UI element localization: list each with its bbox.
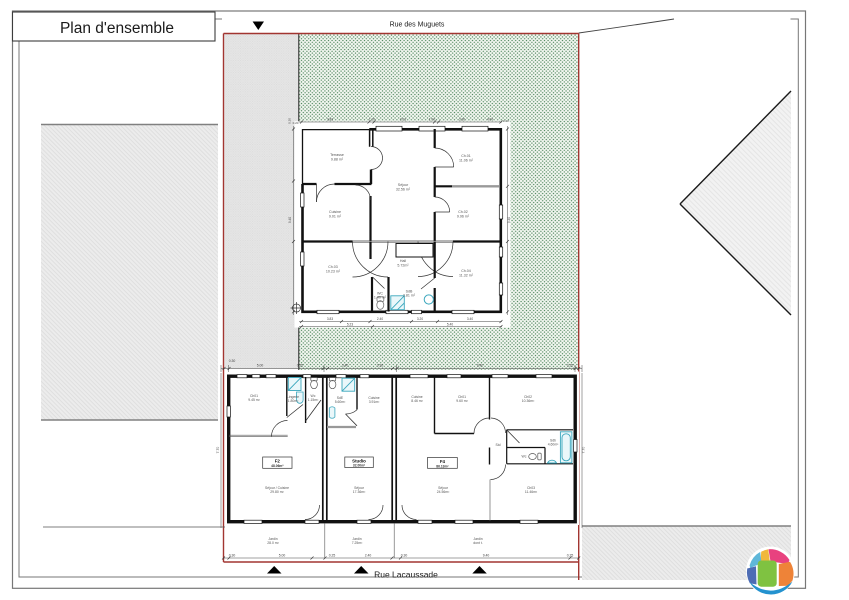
svg-text:Rue Lacaussade: Rue Lacaussade bbox=[374, 570, 438, 580]
svg-text:9.40: 9.40 bbox=[477, 364, 484, 368]
svg-text:9.40: 9.40 bbox=[483, 554, 490, 558]
svg-text:Wc: Wc bbox=[522, 455, 527, 459]
svg-text:17.36m²: 17.36m² bbox=[353, 490, 366, 494]
svg-text:2.40: 2.40 bbox=[365, 554, 372, 558]
svg-text:F4: F4 bbox=[440, 459, 446, 464]
svg-text:28.0 m²: 28.0 m² bbox=[267, 541, 279, 545]
svg-text:11.06 m²: 11.06 m² bbox=[459, 159, 474, 163]
svg-text:0.25: 0.25 bbox=[567, 554, 574, 558]
svg-text:Cuisine: Cuisine bbox=[329, 210, 341, 214]
svg-text:10.36m²: 10.36m² bbox=[522, 399, 535, 403]
svg-text:3.83: 3.83 bbox=[327, 317, 333, 321]
svg-text:1.80m²: 1.80m² bbox=[288, 399, 299, 403]
svg-text:9.40: 9.40 bbox=[288, 217, 292, 223]
svg-text:1.40 m²: 1.40 m² bbox=[374, 296, 387, 300]
svg-text:11.46m²: 11.46m² bbox=[525, 490, 538, 494]
svg-text:5.40: 5.40 bbox=[447, 322, 453, 326]
svg-text:0.30: 0.30 bbox=[377, 364, 384, 368]
svg-text:5.60m²: 5.60m² bbox=[335, 400, 346, 404]
svg-text:0.20: 0.20 bbox=[293, 121, 299, 125]
svg-text:29.80 m²: 29.80 m² bbox=[270, 490, 284, 494]
svg-text:3.40: 3.40 bbox=[467, 317, 473, 321]
svg-text:4.00: 4.00 bbox=[487, 118, 493, 122]
svg-text:Ch.02: Ch.02 bbox=[458, 210, 468, 214]
svg-text:5.23: 5.23 bbox=[347, 322, 353, 326]
svg-text:86.13m²: 86.13m² bbox=[436, 465, 449, 469]
svg-text:9.45 m²: 9.45 m² bbox=[248, 398, 260, 402]
svg-text:1.15m²: 1.15m² bbox=[308, 398, 319, 402]
svg-text:3.20: 3.20 bbox=[417, 317, 423, 321]
svg-text:9.88 m²: 9.88 m² bbox=[331, 158, 344, 162]
svg-text:4.60m²: 4.60m² bbox=[548, 443, 559, 447]
svg-text:3.83: 3.83 bbox=[327, 118, 333, 122]
svg-text:32.00m²: 32.00m² bbox=[353, 464, 366, 468]
svg-text:48.06m²: 48.06m² bbox=[271, 464, 284, 468]
svg-text:9.96 m²: 9.96 m² bbox=[457, 215, 470, 219]
svg-text:Ch.01: Ch.01 bbox=[461, 154, 471, 158]
svg-text:3.81 m²: 3.81 m² bbox=[403, 294, 416, 298]
svg-text:0.30: 0.30 bbox=[229, 554, 236, 558]
svg-text:3.30: 3.30 bbox=[459, 118, 465, 122]
svg-text:9.01 m²: 9.01 m² bbox=[329, 215, 342, 219]
svg-text:Sàl: Sàl bbox=[496, 443, 501, 447]
svg-text:Séjour: Séjour bbox=[398, 183, 409, 187]
svg-text:F2: F2 bbox=[275, 459, 281, 464]
svg-text:0.30: 0.30 bbox=[401, 554, 408, 558]
svg-text:0.25: 0.25 bbox=[567, 364, 574, 368]
svg-text:5.00: 5.00 bbox=[279, 554, 286, 558]
svg-text:1.00: 1.00 bbox=[429, 118, 435, 122]
svg-text:Rue des Muguets: Rue des Muguets bbox=[390, 22, 445, 29]
svg-text:24.56m²: 24.56m² bbox=[437, 490, 450, 494]
svg-text:3.91m²: 3.91m² bbox=[369, 400, 380, 404]
svg-text:0.25: 0.25 bbox=[329, 554, 336, 558]
svg-text:11.32 m²: 11.32 m² bbox=[459, 274, 474, 278]
svg-text:3.03: 3.03 bbox=[400, 118, 406, 122]
svg-text:dont t.: dont t. bbox=[473, 541, 482, 545]
svg-text:10.23 m²: 10.23 m² bbox=[326, 270, 341, 274]
svg-text:5.72m²: 5.72m² bbox=[397, 264, 409, 268]
svg-text:0.30: 0.30 bbox=[229, 359, 236, 363]
svg-text:Ch.04: Ch.04 bbox=[461, 269, 471, 273]
svg-text:9.40: 9.40 bbox=[507, 217, 511, 223]
svg-text:Terrasse: Terrasse bbox=[330, 153, 344, 157]
svg-text:Hall: Hall bbox=[400, 259, 406, 263]
svg-text:5.00: 5.00 bbox=[257, 364, 264, 368]
svg-text:0.20: 0.20 bbox=[288, 118, 292, 124]
svg-text:7.70: 7.70 bbox=[216, 447, 220, 454]
svg-text:0.20: 0.20 bbox=[503, 119, 509, 123]
svg-text:8.46 m²: 8.46 m² bbox=[411, 399, 423, 403]
svg-text:0.25: 0.25 bbox=[297, 364, 304, 368]
svg-text:1.20: 1.20 bbox=[369, 118, 375, 122]
svg-text:Ch.03: Ch.03 bbox=[328, 265, 338, 269]
svg-text:7.25m²: 7.25m² bbox=[352, 541, 363, 545]
svg-text:2.40: 2.40 bbox=[377, 317, 383, 321]
svg-text:3.40: 3.40 bbox=[342, 364, 349, 368]
svg-text:9.60 m²: 9.60 m² bbox=[456, 399, 468, 403]
svg-text:32.56 m²: 32.56 m² bbox=[396, 188, 411, 192]
svg-text:7.70: 7.70 bbox=[582, 447, 586, 454]
svg-text:Plan d'ensemble: Plan d'ensemble bbox=[60, 20, 174, 37]
